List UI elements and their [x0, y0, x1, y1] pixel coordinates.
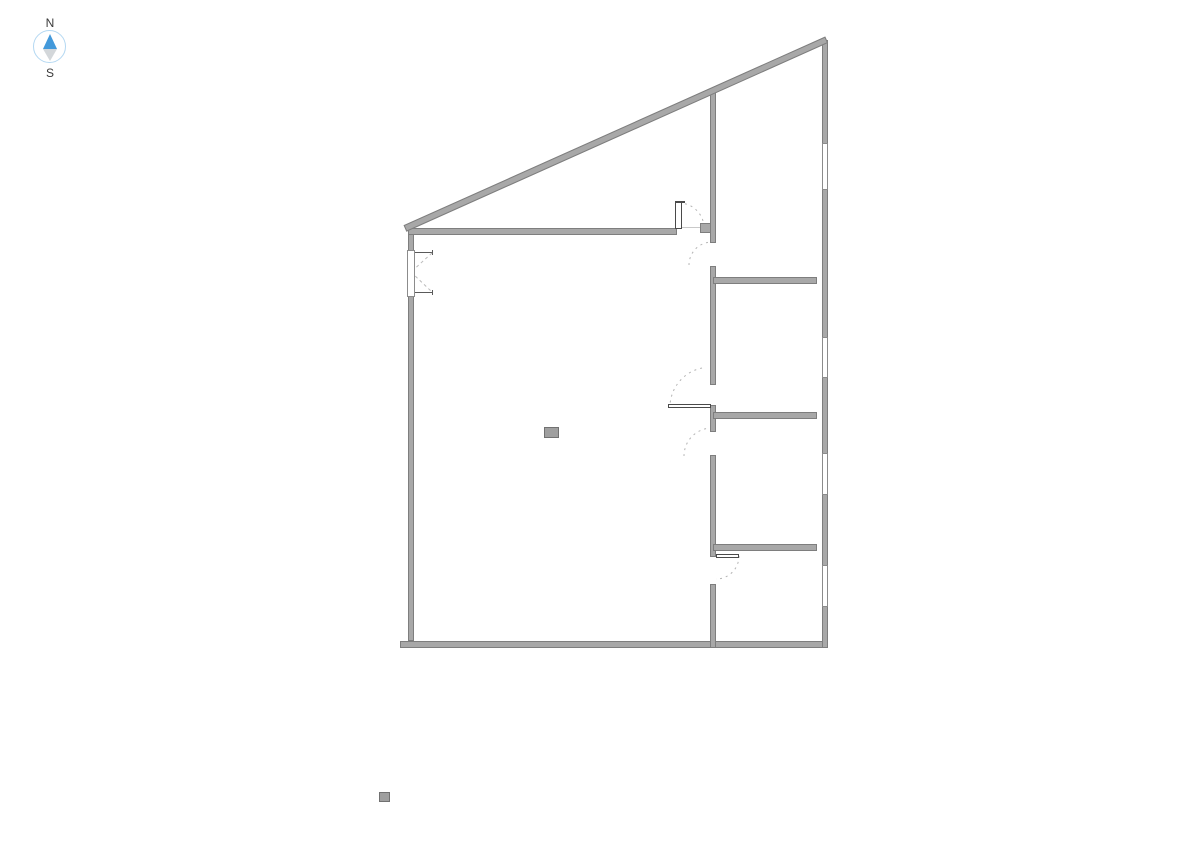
wall-core-segment-1: [710, 90, 716, 243]
wall-core-segment-4: [710, 455, 716, 557]
door-swing-arc-middle: [670, 368, 702, 406]
wall-bottom: [400, 641, 828, 648]
window-right-wall-3: [822, 453, 828, 495]
window-right-wall-4: [822, 565, 828, 607]
window-right-wall-1: [822, 143, 828, 190]
door-leaf-top-cap: [675, 201, 685, 203]
door-swing-arc-lower: [684, 428, 712, 456]
floorplan-annotation-layer: [0, 0, 1191, 841]
wall-core-segment-5: [710, 584, 716, 648]
floorplan-canvas: [0, 0, 1191, 841]
window-left-wall: [407, 250, 415, 297]
wall-room-divider-3: [713, 544, 817, 551]
site-marker: [379, 792, 390, 802]
door-leaf-top: [675, 202, 682, 229]
door-leaf-bottom: [716, 554, 739, 558]
door-swing-arc-upper: [689, 242, 712, 265]
door-leaf-middle: [668, 404, 711, 408]
wall-room-divider-2: [713, 412, 817, 419]
window-right-wall-2: [822, 337, 828, 378]
wall-diagonal-north: [404, 37, 829, 232]
wall-top-interior: [408, 228, 677, 235]
room-column-marker: [544, 427, 559, 438]
door-swing-arc-bottom: [716, 556, 739, 579]
wall-room-divider-1: [713, 277, 817, 284]
